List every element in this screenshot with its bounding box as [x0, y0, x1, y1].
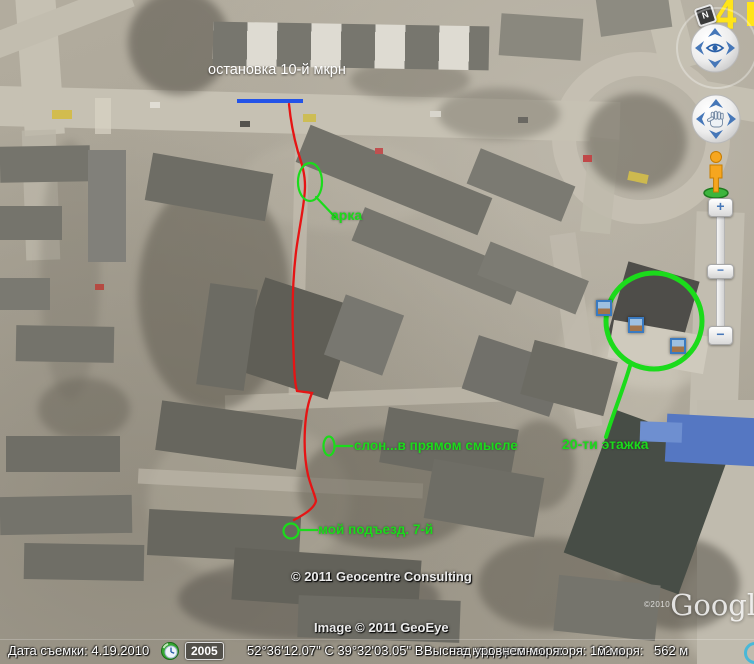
photo-icon[interactable] [596, 300, 612, 316]
tower-leader-line [606, 366, 630, 437]
zoom-out-button[interactable]: − [708, 326, 733, 345]
tower-label: 20-ти этажка [562, 436, 649, 452]
look-joystick[interactable] [690, 23, 740, 73]
google-logo: Google [670, 588, 754, 622]
entrance-label: мой подъезд. 7-й [318, 522, 433, 537]
zoom-slider[interactable]: + − − [703, 198, 735, 348]
google-watermark: ©2010Google [644, 588, 754, 622]
arch-label: арка [331, 207, 362, 223]
elephant-ellipse [324, 437, 335, 456]
zoom-slider-thumb[interactable]: − [707, 264, 734, 279]
pegman-head [711, 152, 722, 163]
pointer-coordinates: 52°36'12.07" С 39°32'03.05" В [247, 643, 423, 658]
google-watermark-year: ©2010 [644, 600, 670, 609]
status-bar: Дата съемки: 4.19.2010 2005 52°36'12.07"… [0, 639, 754, 664]
copyright-geoeye: Image © 2011 GeoEye [314, 620, 449, 635]
zoom-in-button[interactable]: + [708, 198, 733, 217]
imagery-date-value: 4.19.2010 [91, 643, 149, 658]
timeline-year-badge[interactable]: 2005 [185, 642, 224, 660]
clock-icon[interactable] [161, 642, 179, 660]
entrance-circle [284, 524, 299, 539]
eye-altitude: 562 м [654, 643, 688, 658]
photo-icon[interactable] [628, 317, 644, 333]
copyright-geocentre: © 2011 Geocentre Consulting [291, 569, 472, 584]
elevation-ghost-text: над уровнем моря: [449, 643, 563, 658]
elevation-ghost-text2: м моря: [597, 643, 643, 658]
photo-icon[interactable] [670, 338, 686, 354]
arch-ellipse [298, 163, 322, 201]
google-earth-window: остановка 10-й мкрн арка слон...в прямом… [0, 0, 754, 664]
pegman-icon[interactable] [702, 150, 732, 205]
imagery-date-label: Дата съемки: [8, 643, 88, 658]
imagery-date: Дата съемки: 4.19.2010 [8, 643, 149, 658]
bus-stop-label: остановка 10-й мкрн [208, 62, 346, 78]
tower-circle [606, 273, 702, 369]
move-joystick[interactable] [691, 94, 741, 144]
elephant-label: слон...в прямом смысле [354, 438, 518, 453]
